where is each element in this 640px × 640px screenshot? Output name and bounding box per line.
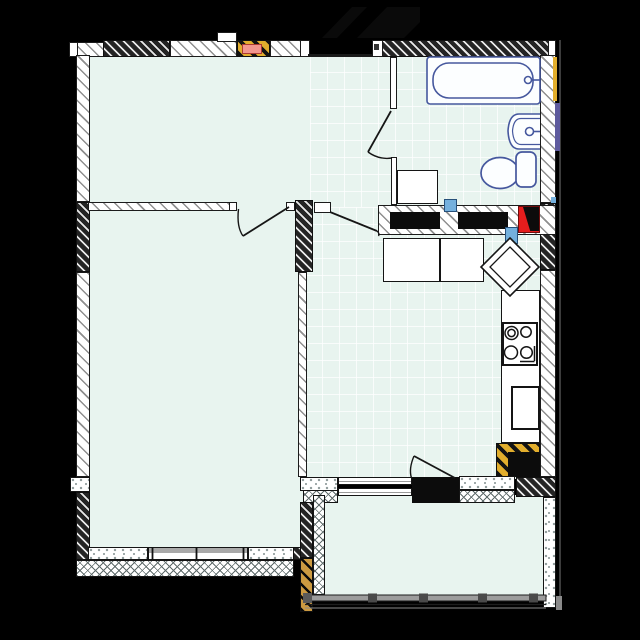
balcony-left-pier xyxy=(300,502,313,558)
wall-middle-cap-2 xyxy=(286,202,295,211)
kitchen-door-hinge-plate xyxy=(314,202,331,213)
plumbing-riser-top xyxy=(444,199,457,212)
oven xyxy=(511,386,540,430)
wall-left-pier xyxy=(76,202,90,272)
balcony-left-column-tan xyxy=(300,558,313,612)
entrance-arrow-part1 xyxy=(322,7,367,38)
kitchen-south-sill-left xyxy=(300,477,338,491)
bedroom-south-insulation xyxy=(76,560,294,577)
washing-machine xyxy=(397,170,438,204)
kitchen-balcony-window-inner xyxy=(338,488,412,496)
balcony-left-insulation xyxy=(313,495,325,595)
cap-inner-square xyxy=(374,44,379,50)
kitchen-counter-cabinet-2 xyxy=(440,238,484,282)
balcony-door-opening xyxy=(412,477,459,503)
wall-top-seg4 xyxy=(270,40,301,57)
stove-frame xyxy=(502,322,538,366)
vent-duct-pink xyxy=(242,44,262,54)
balcony-right-cap xyxy=(556,596,562,610)
wall-middle-partition xyxy=(88,202,230,211)
kitchen-balcony-window-outer xyxy=(338,477,412,485)
bedroom-south-sill-left xyxy=(88,547,148,560)
kitchen-south-wall-corner xyxy=(516,477,556,497)
gas-pipe-strip xyxy=(553,57,557,101)
balcony-floor xyxy=(315,495,545,598)
wall-left-seg2 xyxy=(76,272,90,477)
kitchen-south-cross-right xyxy=(459,490,515,503)
wall-top-notch xyxy=(217,32,237,42)
wall-top-seg3 xyxy=(170,40,237,57)
plumbing-riser-bottom xyxy=(505,227,518,244)
wall-right-seg2 xyxy=(540,270,556,477)
wall-core-1 xyxy=(390,212,440,229)
wall-top-bathroom xyxy=(372,40,556,57)
kitchen-south-sill-right xyxy=(459,476,515,490)
bedroom-floor xyxy=(88,207,304,552)
kitchen-vent-core xyxy=(508,452,540,477)
wall-core-2 xyxy=(458,212,508,229)
wall-top-seg2-dark xyxy=(103,40,170,57)
wall-left-seg1 xyxy=(76,55,90,202)
floor-plan-canvas xyxy=(0,0,640,640)
entrance-threshold xyxy=(308,54,374,57)
bedroom-window-band xyxy=(149,548,247,553)
wall-bathroom-left-upper xyxy=(390,57,397,109)
entrance-arrow-part2 xyxy=(357,7,420,38)
pier-hall-kitchen xyxy=(295,200,313,272)
bedroom-window xyxy=(148,547,248,560)
bedroom-south-sill-right xyxy=(248,547,294,560)
wall-left-sill xyxy=(70,477,90,492)
wall-middle-cap-1 xyxy=(229,202,237,211)
riser-dot-blue xyxy=(551,197,556,203)
kitchen-counter-cabinet-1 xyxy=(383,238,440,282)
living-room-floor xyxy=(88,55,310,207)
balcony-right-wall xyxy=(543,497,556,608)
wall-bathroom-left-lower xyxy=(391,157,397,205)
water-pipe-strip xyxy=(555,103,560,151)
wall-bedroom-kitchen-partition xyxy=(298,272,307,477)
